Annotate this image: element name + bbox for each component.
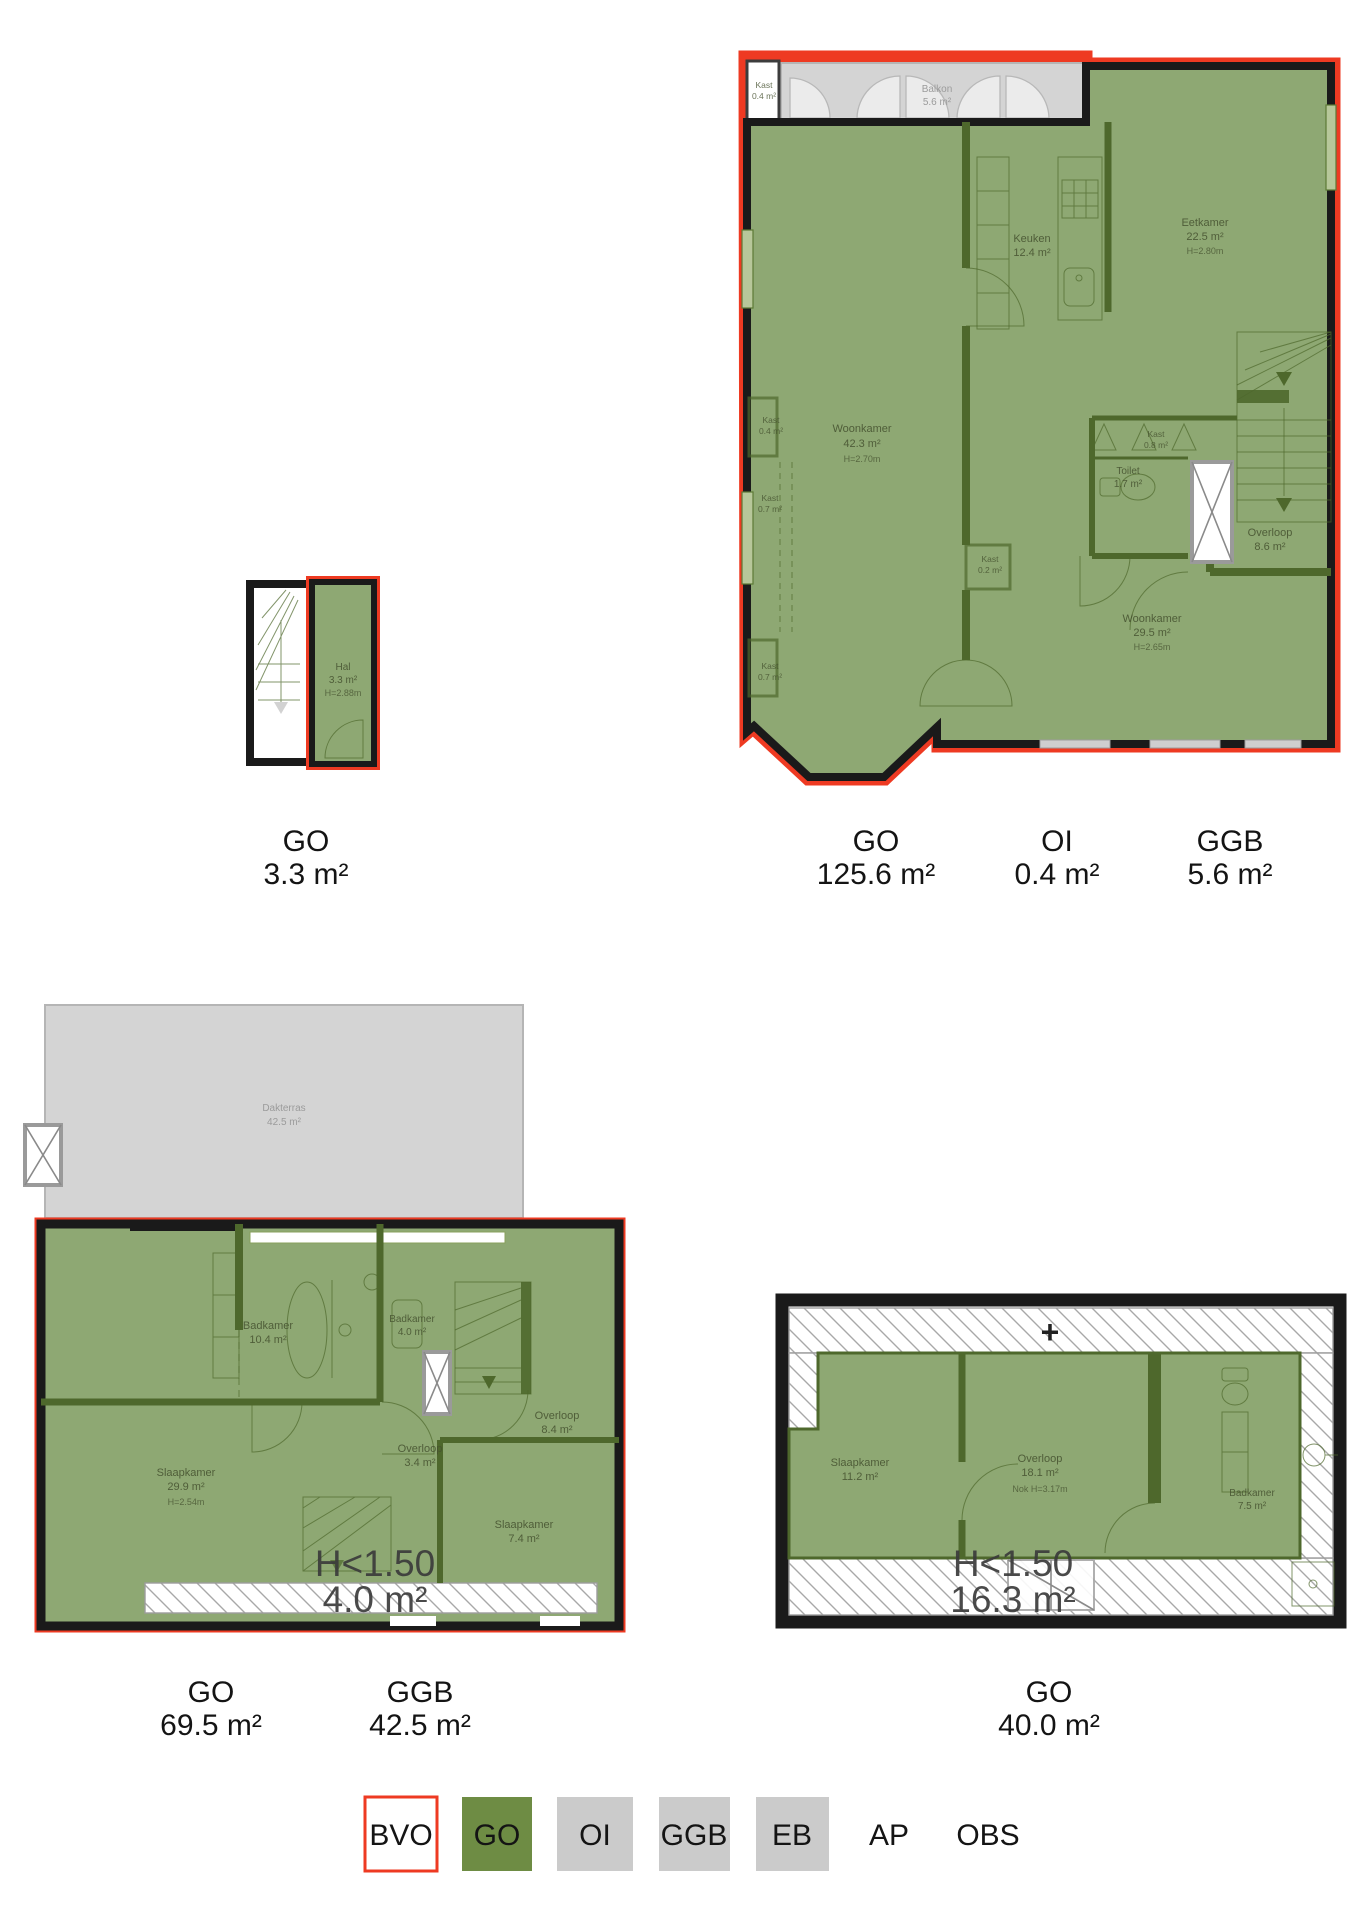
svg-text:5.6 m²: 5.6 m² — [923, 97, 952, 108]
svg-text:H<1.50: H<1.50 — [953, 1543, 1073, 1584]
svg-text:H=2.65m: H=2.65m — [1134, 642, 1171, 652]
svg-text:Overloop: Overloop — [1018, 1453, 1063, 1465]
total-value: 125.6 m² — [817, 858, 935, 891]
legend-label-obs: OBS — [956, 1819, 1019, 1852]
total-code: GO — [283, 825, 330, 858]
svg-text:8.4 m²: 8.4 m² — [541, 1424, 573, 1436]
svg-text:Slaapkamer: Slaapkamer — [157, 1467, 216, 1479]
window — [1245, 740, 1301, 748]
limited-height-hatch-top — [789, 1308, 1333, 1353]
svg-text:Nok H=3.17m: Nok H=3.17m — [1012, 1484, 1067, 1494]
svg-text:Woonkamer: Woonkamer — [1122, 613, 1181, 625]
total-code: GGB — [1197, 825, 1264, 858]
svg-text:Woonkamer: Woonkamer — [832, 423, 891, 435]
window — [1150, 740, 1220, 748]
window — [1040, 740, 1110, 748]
svg-text:0.4 m²: 0.4 m² — [759, 426, 783, 436]
window — [540, 1616, 580, 1626]
legend-label-oi: OI — [579, 1819, 611, 1852]
svg-text:Badkamer: Badkamer — [389, 1314, 435, 1325]
svg-text:Hal: Hal — [335, 662, 350, 673]
svg-text:Dakterras: Dakterras — [262, 1103, 305, 1114]
svg-text:8.6 m²: 8.6 m² — [1254, 541, 1286, 553]
svg-text:H=2.80m: H=2.80m — [1187, 246, 1224, 256]
svg-text:Toilet: Toilet — [1116, 466, 1140, 477]
svg-text:16.3 m²: 16.3 m² — [950, 1579, 1075, 1620]
interior-wall — [1148, 1353, 1161, 1503]
total-code: GO — [853, 825, 900, 858]
svg-text:11.2 m²: 11.2 m² — [842, 1471, 879, 1483]
svg-text:Badkamer: Badkamer — [1229, 1488, 1275, 1499]
totals-row-1: GO 3.3 m² GO 125.6 m² OI 0.4 m² GGB 5.6 … — [263, 825, 1272, 891]
stairwell-room — [250, 584, 310, 762]
svg-text:4.0 m²: 4.0 m² — [323, 1579, 428, 1620]
svg-text:7.4 m²: 7.4 m² — [508, 1533, 540, 1545]
svg-text:29.5 m²: 29.5 m² — [1133, 627, 1171, 639]
svg-text:Eetkamer: Eetkamer — [1181, 217, 1228, 229]
limited-height-hatch-left — [789, 1353, 818, 1429]
total-value: 69.5 m² — [160, 1709, 262, 1742]
floorplan-third-floor: + Slaapkamer 11.2 m² Overloop 18.1 m² No… — [782, 1300, 1340, 1622]
svg-text:H=2.88m: H=2.88m — [325, 688, 362, 698]
total-value: 42.5 m² — [369, 1709, 471, 1742]
floorplan-sheet: Hal 3.3 m² H=2.88m Balkon 5.6 m² Kast 0.… — [0, 0, 1358, 1920]
svg-text:Kast: Kast — [981, 554, 999, 564]
svg-text:Balkon: Balkon — [922, 84, 953, 95]
svg-text:42.3 m²: 42.3 m² — [843, 438, 881, 450]
total-code: OI — [1041, 825, 1073, 858]
svg-text:0.4 m²: 0.4 m² — [752, 91, 776, 101]
svg-text:7.5 m²: 7.5 m² — [1238, 1501, 1267, 1512]
svg-text:18.1 m²: 18.1 m² — [1021, 1467, 1059, 1479]
svg-text:Kast: Kast — [761, 493, 779, 503]
svg-text:29.9 m²: 29.9 m² — [167, 1481, 205, 1493]
legend-label-ap: AP — [869, 1819, 909, 1852]
svg-text:Overloop: Overloop — [535, 1410, 580, 1422]
total-code: GO — [188, 1676, 235, 1709]
svg-text:H=2.70m: H=2.70m — [844, 454, 881, 464]
total-value: 40.0 m² — [998, 1709, 1100, 1742]
svg-text:0.7 m²: 0.7 m² — [758, 672, 782, 682]
room-label-eetkamer: Eetkamer 22.5 m² H=2.80m — [1181, 217, 1228, 256]
window — [742, 230, 753, 308]
svg-text:H=2.54m: H=2.54m — [168, 1497, 205, 1507]
svg-text:Badkamer: Badkamer — [243, 1320, 293, 1332]
svg-text:0.8 m²: 0.8 m² — [1144, 440, 1168, 450]
total-value: 0.4 m² — [1014, 858, 1099, 891]
svg-text:3.4 m²: 3.4 m² — [404, 1457, 436, 1469]
svg-text:Kast: Kast — [1147, 429, 1165, 439]
floorplan-drawing: Hal 3.3 m² H=2.88m Balkon 5.6 m² Kast 0.… — [0, 0, 1358, 1920]
legend: BVO GO OI GGB EB AP OBS — [365, 1797, 1020, 1871]
total-code: GO — [1026, 1676, 1073, 1709]
legend-label-bvo: BVO — [369, 1819, 432, 1852]
hal-room — [312, 582, 374, 764]
svg-text:Kast: Kast — [761, 661, 779, 671]
svg-text:Slaapkamer: Slaapkamer — [495, 1519, 554, 1531]
svg-text:Slaapkamer: Slaapkamer — [831, 1457, 890, 1469]
legend-label-ggb: GGB — [661, 1819, 728, 1852]
window — [1326, 105, 1336, 190]
svg-text:H<1.50: H<1.50 — [315, 1543, 435, 1584]
floorplan-second-floor: Dakterras 42.5 m² — [25, 1005, 619, 1626]
totals-row-2: GO 69.5 m² GGB 42.5 m² GO 40.0 m² — [160, 1676, 1100, 1742]
limited-height-label: H<1.50 4.0 m² — [315, 1543, 435, 1620]
total-code: GGB — [387, 1676, 454, 1709]
svg-text:Kast: Kast — [755, 80, 773, 90]
window — [742, 492, 753, 584]
svg-text:Keuken: Keuken — [1013, 233, 1050, 245]
total-value: 5.6 m² — [1187, 858, 1272, 891]
wall-segment — [130, 1220, 240, 1231]
legend-label-go: GO — [474, 1819, 521, 1852]
limited-height-label: H<1.50 16.3 m² — [950, 1543, 1075, 1620]
svg-text:10.4 m²: 10.4 m² — [249, 1334, 287, 1346]
svg-text:42.5 m²: 42.5 m² — [267, 1117, 302, 1128]
svg-text:3.3 m²: 3.3 m² — [329, 675, 358, 686]
roof-marker: + — [1041, 1314, 1060, 1350]
svg-text:0.2 m²: 0.2 m² — [978, 565, 1002, 575]
svg-text:22.5 m²: 22.5 m² — [1186, 231, 1224, 243]
floorplan-ground-floor: Hal 3.3 m² H=2.88m — [250, 582, 374, 764]
svg-text:Overloop: Overloop — [1248, 527, 1293, 539]
svg-text:12.4 m²: 12.4 m² — [1013, 247, 1051, 259]
svg-text:1.7 m²: 1.7 m² — [1114, 479, 1143, 490]
first-floor-go-area — [747, 66, 1331, 777]
total-value: 3.3 m² — [263, 858, 348, 891]
floorplan-first-floor: Balkon 5.6 m² Kast 0.4 m² — [742, 57, 1336, 779]
svg-text:0.7 m²: 0.7 m² — [758, 504, 782, 514]
svg-text:4.0 m²: 4.0 m² — [398, 1327, 427, 1338]
svg-text:Overloop: Overloop — [398, 1443, 443, 1455]
svg-text:Kast: Kast — [762, 415, 780, 425]
legend-label-eb: EB — [772, 1819, 812, 1852]
